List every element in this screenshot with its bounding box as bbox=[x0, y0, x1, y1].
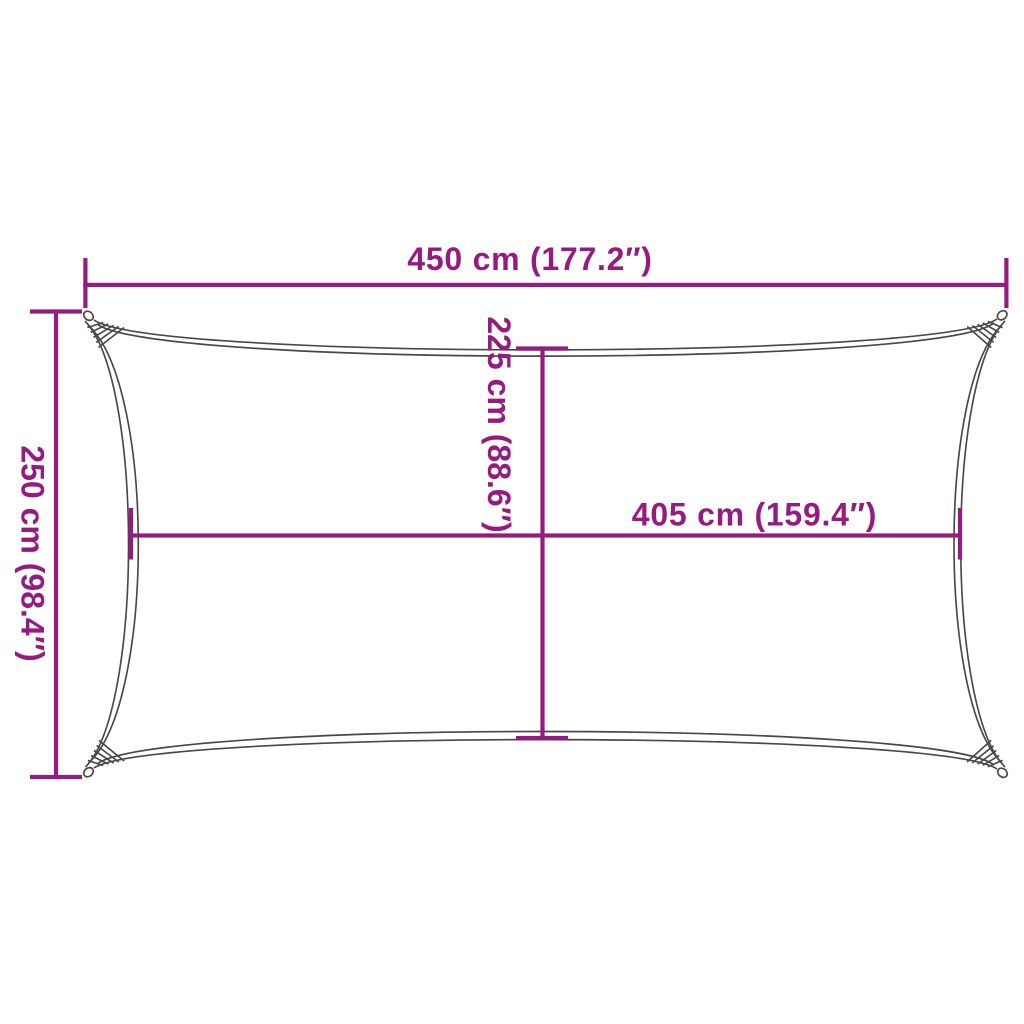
svg-text:225 cm (88.6″): 225 cm (88.6″) bbox=[481, 316, 517, 532]
svg-text:250 cm (98.4″): 250 cm (98.4″) bbox=[15, 445, 51, 661]
svg-text:405 cm (159.4″): 405 cm (159.4″) bbox=[632, 497, 877, 533]
svg-text:450 cm (177.2″): 450 cm (177.2″) bbox=[407, 241, 652, 277]
